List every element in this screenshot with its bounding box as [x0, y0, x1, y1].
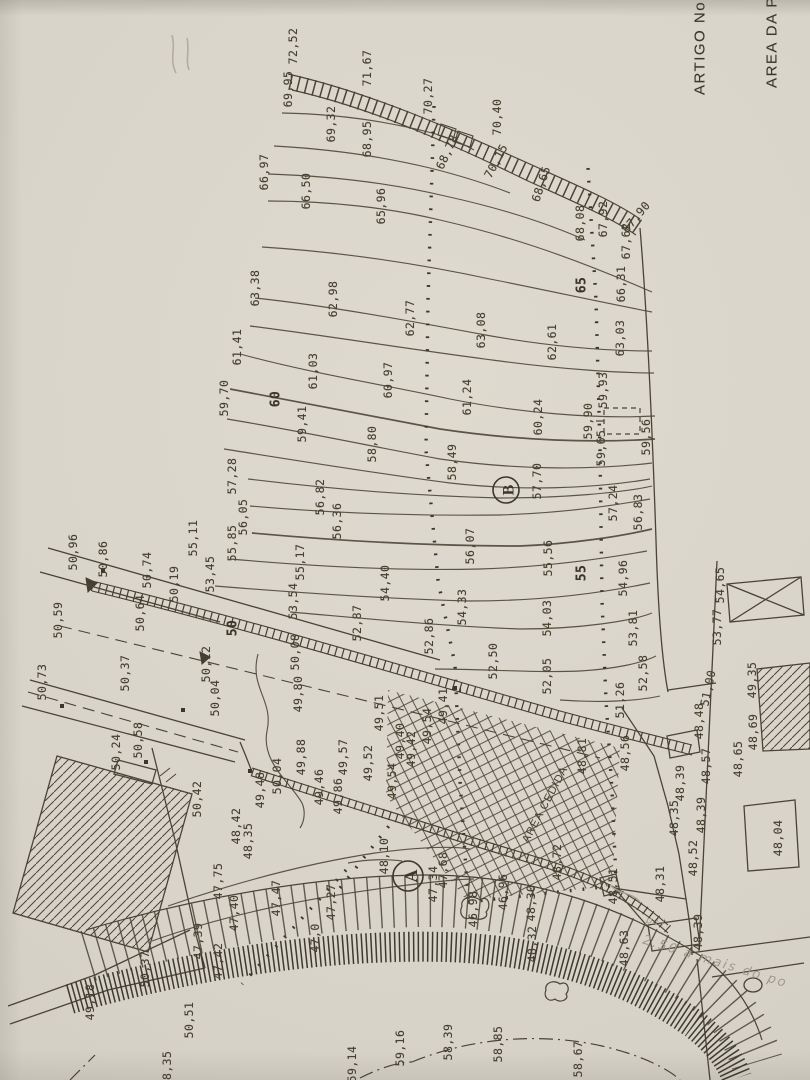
elevation-label: 48,32: [525, 926, 539, 963]
elevation-label: 59,56: [639, 419, 653, 456]
elevation-label: 50,59: [51, 602, 65, 639]
elevation-label: 49,42: [404, 731, 418, 768]
elevation-label: 69,95: [281, 71, 295, 108]
elevation-label: 59,65: [594, 430, 608, 467]
elevation-label: 49,18: [83, 984, 97, 1021]
elevation-label: 50,86: [96, 541, 110, 578]
elevation-label: 49,41: [436, 688, 450, 725]
elevation-label: 56,83: [631, 494, 645, 531]
elevation-label: 48,35: [667, 800, 681, 837]
elevation-label: 54,65: [713, 567, 727, 604]
elevation-label: 50,96: [66, 534, 80, 571]
elevation-label: 56,07: [463, 528, 477, 565]
tree-symbol: [545, 982, 568, 1001]
elevation-label: 62,98: [326, 281, 340, 318]
dashed-structure-outline: [604, 408, 640, 434]
survey-map-drawing: AREA CEDIDA: [0, 0, 810, 1080]
elevation-label: 70,40: [490, 99, 504, 136]
elevation-label: 55,11: [186, 520, 200, 557]
elevation-label: 66,31: [614, 266, 628, 303]
elevation-label: 49,51: [372, 695, 386, 732]
elevation-label: 50,19: [167, 566, 181, 603]
elevation-label: 61,03: [306, 353, 320, 390]
embankment-bands: [70, 875, 762, 1078]
elevation-label: 58,39: [441, 1024, 455, 1061]
elevation-label: 58,35: [160, 1051, 174, 1080]
elevation-label: 48,69: [746, 714, 760, 751]
elevation-label: 47,42: [211, 943, 225, 980]
elevation-label: 49,35: [745, 662, 759, 699]
elevation-label: 63,08: [474, 312, 488, 349]
elevation-label: 48,39: [694, 797, 708, 834]
elevation-label: 54,03: [540, 600, 554, 637]
elevation-label: 47,0: [308, 923, 322, 952]
elevation-label: 50,37: [118, 655, 132, 692]
elevation-label: 51,26: [613, 682, 627, 719]
elevation-label: 48,48: [692, 703, 706, 740]
elevation-label: 59,14: [345, 1046, 359, 1080]
elevation-label: 48,65: [731, 741, 745, 778]
elevation-label: 66,50: [299, 173, 313, 210]
elevation-label: 72,52: [286, 28, 300, 65]
elevation-label: 50,37: [138, 951, 152, 988]
elevation-label: 49,88: [294, 739, 308, 776]
elevation-label: 65: [575, 277, 590, 293]
elevation-label: 50,51: [182, 1002, 196, 1039]
elevation-label: 48,51: [606, 868, 620, 905]
section-marker-a: A: [401, 870, 421, 883]
elevation-label: 50,04: [208, 680, 222, 717]
elevation-label: 48,56: [618, 735, 632, 772]
elevation-label: 48,10: [377, 838, 391, 875]
elevation-label: 49,54: [420, 708, 434, 745]
elevation-label: 60: [269, 391, 284, 407]
scanned-survey-map: AREA CEDIDA: [0, 0, 810, 1080]
elevation-label: 48,31: [653, 866, 667, 903]
elevation-label: 47,39: [191, 923, 205, 960]
elevation-label: 50,58: [131, 722, 145, 759]
elevation-label: 50,24: [109, 734, 123, 771]
elevation-label: 55,17: [293, 544, 307, 581]
elevation-label: 47,75: [211, 863, 225, 900]
elevation-label: 58,67: [571, 1041, 585, 1078]
elevation-label: 55,56: [541, 540, 555, 577]
elevation-label: 53,81: [626, 610, 640, 647]
elevation-label: 62,77: [403, 300, 417, 337]
elevation-label: 53,77: [710, 609, 724, 646]
elevation-label: 46,98: [466, 891, 480, 928]
elevation-label: 47,47: [269, 880, 283, 917]
elevation-label: 53,54: [286, 583, 300, 620]
elevation-label: 52,58: [636, 655, 650, 692]
elevation-label: 52,50: [486, 643, 500, 680]
elevation-label: 58,80: [365, 426, 379, 463]
elevation-label: 61,24: [460, 379, 474, 416]
elevation-label: 59,70: [217, 380, 231, 417]
elevation-label: 56,36: [330, 503, 344, 540]
elevation-label: 50: [226, 620, 241, 636]
elevation-label: 66,97: [257, 154, 271, 191]
pencil-marks: [172, 35, 189, 73]
area-da-title: AREA DA P: [764, 0, 781, 88]
elevation-label: 55,85: [225, 525, 239, 562]
elevation-label: 52,05: [540, 658, 554, 695]
elevation-label: 53,45: [203, 556, 217, 593]
elevation-label: 48,72: [550, 844, 564, 881]
elevation-label: 48,04: [771, 820, 785, 857]
elevation-label: 70,27: [421, 78, 435, 115]
elevation-label: 48,39: [691, 914, 705, 951]
elevation-label: 50,64: [133, 595, 147, 632]
elevation-label: 58,49: [445, 444, 459, 481]
elevation-label: 52,87: [350, 605, 364, 642]
elevation-label: 47,40: [227, 895, 241, 932]
elevation-label: 69,32: [324, 106, 338, 143]
elevation-label: 54,33: [455, 589, 469, 626]
section-marker-b: B: [501, 484, 518, 495]
elevation-label: 59,93: [596, 372, 610, 409]
elevation-label: 49,46: [312, 769, 326, 806]
elevation-label: 49,80: [291, 676, 305, 713]
elevation-label: 63,03: [613, 320, 627, 357]
elevation-label: 46,96: [496, 874, 510, 911]
elevation-label: 50,74: [140, 552, 154, 589]
elevation-label: 48,39: [673, 765, 687, 802]
elevation-label: 71,67: [360, 50, 374, 87]
elevation-label: 48,63: [617, 930, 631, 967]
elevation-label: 49,52: [361, 745, 375, 782]
elevation-label: 50,73: [35, 664, 49, 701]
elevation-label: 48,30: [524, 885, 538, 922]
elevation-label: 55: [575, 565, 590, 581]
elevation-label: 48,35: [241, 823, 255, 860]
elevation-label: 50,04: [270, 758, 284, 795]
elevation-label: 48,52: [686, 840, 700, 877]
elevation-label: 48,81: [575, 738, 589, 775]
elevation-label: 50,08: [288, 634, 302, 671]
elevation-label: 49,48: [253, 772, 267, 809]
elevation-label: 49,57: [336, 739, 350, 776]
elevation-label: 61,41: [230, 329, 244, 366]
elevation-label: 68,08: [573, 205, 587, 242]
elevation-label: 56,82: [313, 479, 327, 516]
elevation-label: 57,70: [530, 463, 544, 500]
elevation-label: 59,16: [393, 1030, 407, 1067]
elevation-label: 49,54: [385, 763, 399, 800]
elevation-label: 49,86: [331, 778, 345, 815]
elevation-label: 57,28: [225, 458, 239, 495]
elevation-label: 50,12: [199, 646, 213, 683]
artigo-title: ARTIGO No: [692, 1, 709, 95]
elevation-label: 67,62: [619, 223, 633, 260]
elevation-label: 60,24: [531, 399, 545, 436]
elevation-label: 47,68: [436, 852, 450, 889]
slope-hatch-band: [288, 74, 640, 235]
elevation-label: 57,24: [606, 485, 620, 522]
elevation-label: 63,38: [248, 270, 262, 307]
elevation-label: 59,41: [295, 406, 309, 443]
elevation-label: 48,57: [699, 748, 713, 785]
elevation-label: 68,95: [360, 121, 374, 158]
elevation-label: 62,61: [545, 324, 559, 361]
elevation-label: 52,86: [422, 618, 436, 655]
elevation-label: 54,96: [616, 560, 630, 597]
elevation-label: 47,27: [324, 884, 338, 921]
elevation-label: 67,92: [596, 201, 610, 238]
elevation-label: 50,42: [190, 781, 204, 818]
elevation-label: 60,97: [381, 362, 395, 399]
elevation-label: 58,85: [491, 1026, 505, 1063]
elevation-label: 54,40: [378, 565, 392, 602]
elevation-label: 65,96: [374, 188, 388, 225]
elevation-label: 59,90: [581, 403, 595, 440]
